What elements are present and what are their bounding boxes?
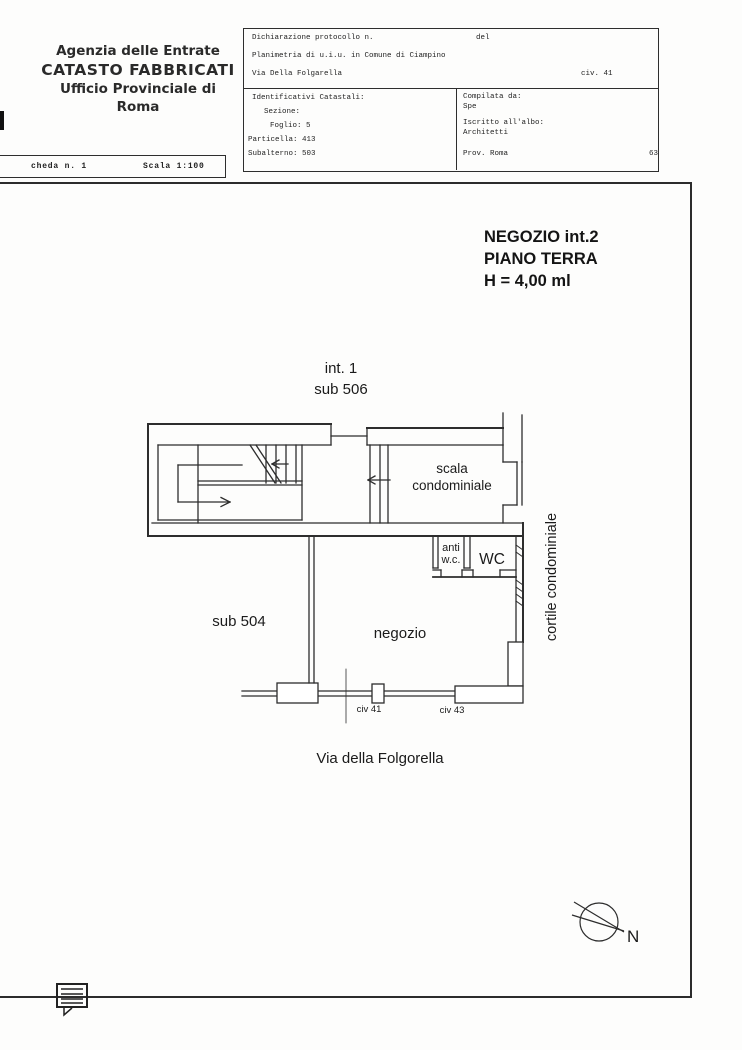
main-dividing-wall bbox=[148, 523, 523, 536]
protocol-table: Dichiarazione protocollo n. del Planimet… bbox=[243, 28, 659, 172]
storefront bbox=[242, 669, 523, 723]
civ41-label: civ 41 bbox=[357, 704, 382, 715]
catasto-title: CATASTO FABBRICATI bbox=[38, 60, 238, 80]
compilata-cell: Compilata da: Spe Iscritto all'albo: Arc… bbox=[457, 89, 658, 170]
compilata-title: Compilata da: bbox=[463, 93, 522, 101]
floor-plan: scala condominiale anti w.c. WC sub 504 … bbox=[125, 400, 575, 730]
unit-floor: PIANO TERRA bbox=[484, 248, 599, 270]
unit-height: H = 4,00 ml bbox=[484, 270, 599, 292]
int1-sub506-label: int. 1 sub 506 bbox=[281, 358, 401, 400]
sub506-line: sub 506 bbox=[281, 379, 401, 400]
anti-wc-label-2: w.c. bbox=[441, 554, 461, 566]
shop-divider-wall bbox=[309, 537, 314, 683]
note-bubble-icon bbox=[54, 982, 94, 1020]
protocol-del: del bbox=[476, 34, 490, 42]
civic-number: civ. 41 bbox=[581, 70, 613, 78]
subalterno: Subalterno: 503 bbox=[248, 150, 316, 158]
catastali-cell: Identificativi Catastali: Sezione: Fogli… bbox=[244, 89, 457, 170]
street-line: Via Della Folgarella bbox=[252, 70, 342, 78]
compilata-name: Spe bbox=[463, 103, 477, 111]
particella: Particella: 413 bbox=[248, 136, 316, 144]
office-line: Ufficio Provinciale di bbox=[38, 80, 238, 98]
planimetria-line: Planimetria di u.i.u. in Comune di Ciamp… bbox=[252, 52, 446, 60]
agency-name: Agenzia delle Entrate bbox=[38, 42, 238, 60]
scan-edge-mark bbox=[0, 111, 4, 130]
identifiers-section: Identificativi Catastali: Sezione: Fogli… bbox=[244, 89, 658, 170]
cortile-wall bbox=[508, 523, 523, 686]
scala-label-2: condominiale bbox=[412, 478, 492, 493]
albo-value: Architetti bbox=[463, 129, 508, 137]
office-city: Roma bbox=[38, 98, 238, 116]
negozio-label: negozio bbox=[374, 625, 427, 642]
cadastral-plan-sheet: Agenzia delle Entrate CATASTO FABBRICATI… bbox=[0, 0, 742, 1050]
sub504-label: sub 504 bbox=[212, 613, 265, 630]
foglio: Foglio: 5 bbox=[270, 122, 311, 130]
unit-name: NEGOZIO int.2 bbox=[484, 226, 599, 248]
north-compass: N bbox=[550, 878, 670, 963]
scheda-number: cheda n. 1 bbox=[31, 162, 87, 171]
wc-label: WC bbox=[479, 551, 505, 568]
anti-wc-label-1: anti bbox=[442, 542, 460, 554]
protocol-label: Dichiarazione protocollo n. bbox=[252, 34, 374, 42]
catastali-title: Identificativi Catastali: bbox=[252, 94, 365, 102]
north-label: N bbox=[627, 927, 639, 946]
scheda-box: cheda n. 1 Scala 1:100 bbox=[0, 155, 226, 178]
prov-number: 63 bbox=[649, 150, 658, 158]
unit-title: NEGOZIO int.2 PIANO TERRA H = 4,00 ml bbox=[484, 226, 599, 292]
int1-line: int. 1 bbox=[281, 358, 401, 379]
scala-label-1: scala bbox=[436, 461, 468, 476]
sezione: Sezione: bbox=[264, 108, 300, 116]
protocol-header-section: Dichiarazione protocollo n. del Planimet… bbox=[244, 29, 658, 89]
stairwell-sub506 bbox=[148, 424, 331, 536]
cortile-label: cortile condominiale bbox=[544, 513, 560, 641]
civ43-label: civ 43 bbox=[440, 705, 465, 716]
scale-label: Scala 1:100 bbox=[143, 162, 205, 171]
albo-label: Iscritto all'albo: bbox=[463, 119, 544, 127]
agency-header: Agenzia delle Entrate CATASTO FABBRICATI… bbox=[38, 42, 238, 116]
prov-label: Prov. Roma bbox=[463, 150, 508, 158]
street-name: Via della Folgorella bbox=[280, 750, 480, 767]
